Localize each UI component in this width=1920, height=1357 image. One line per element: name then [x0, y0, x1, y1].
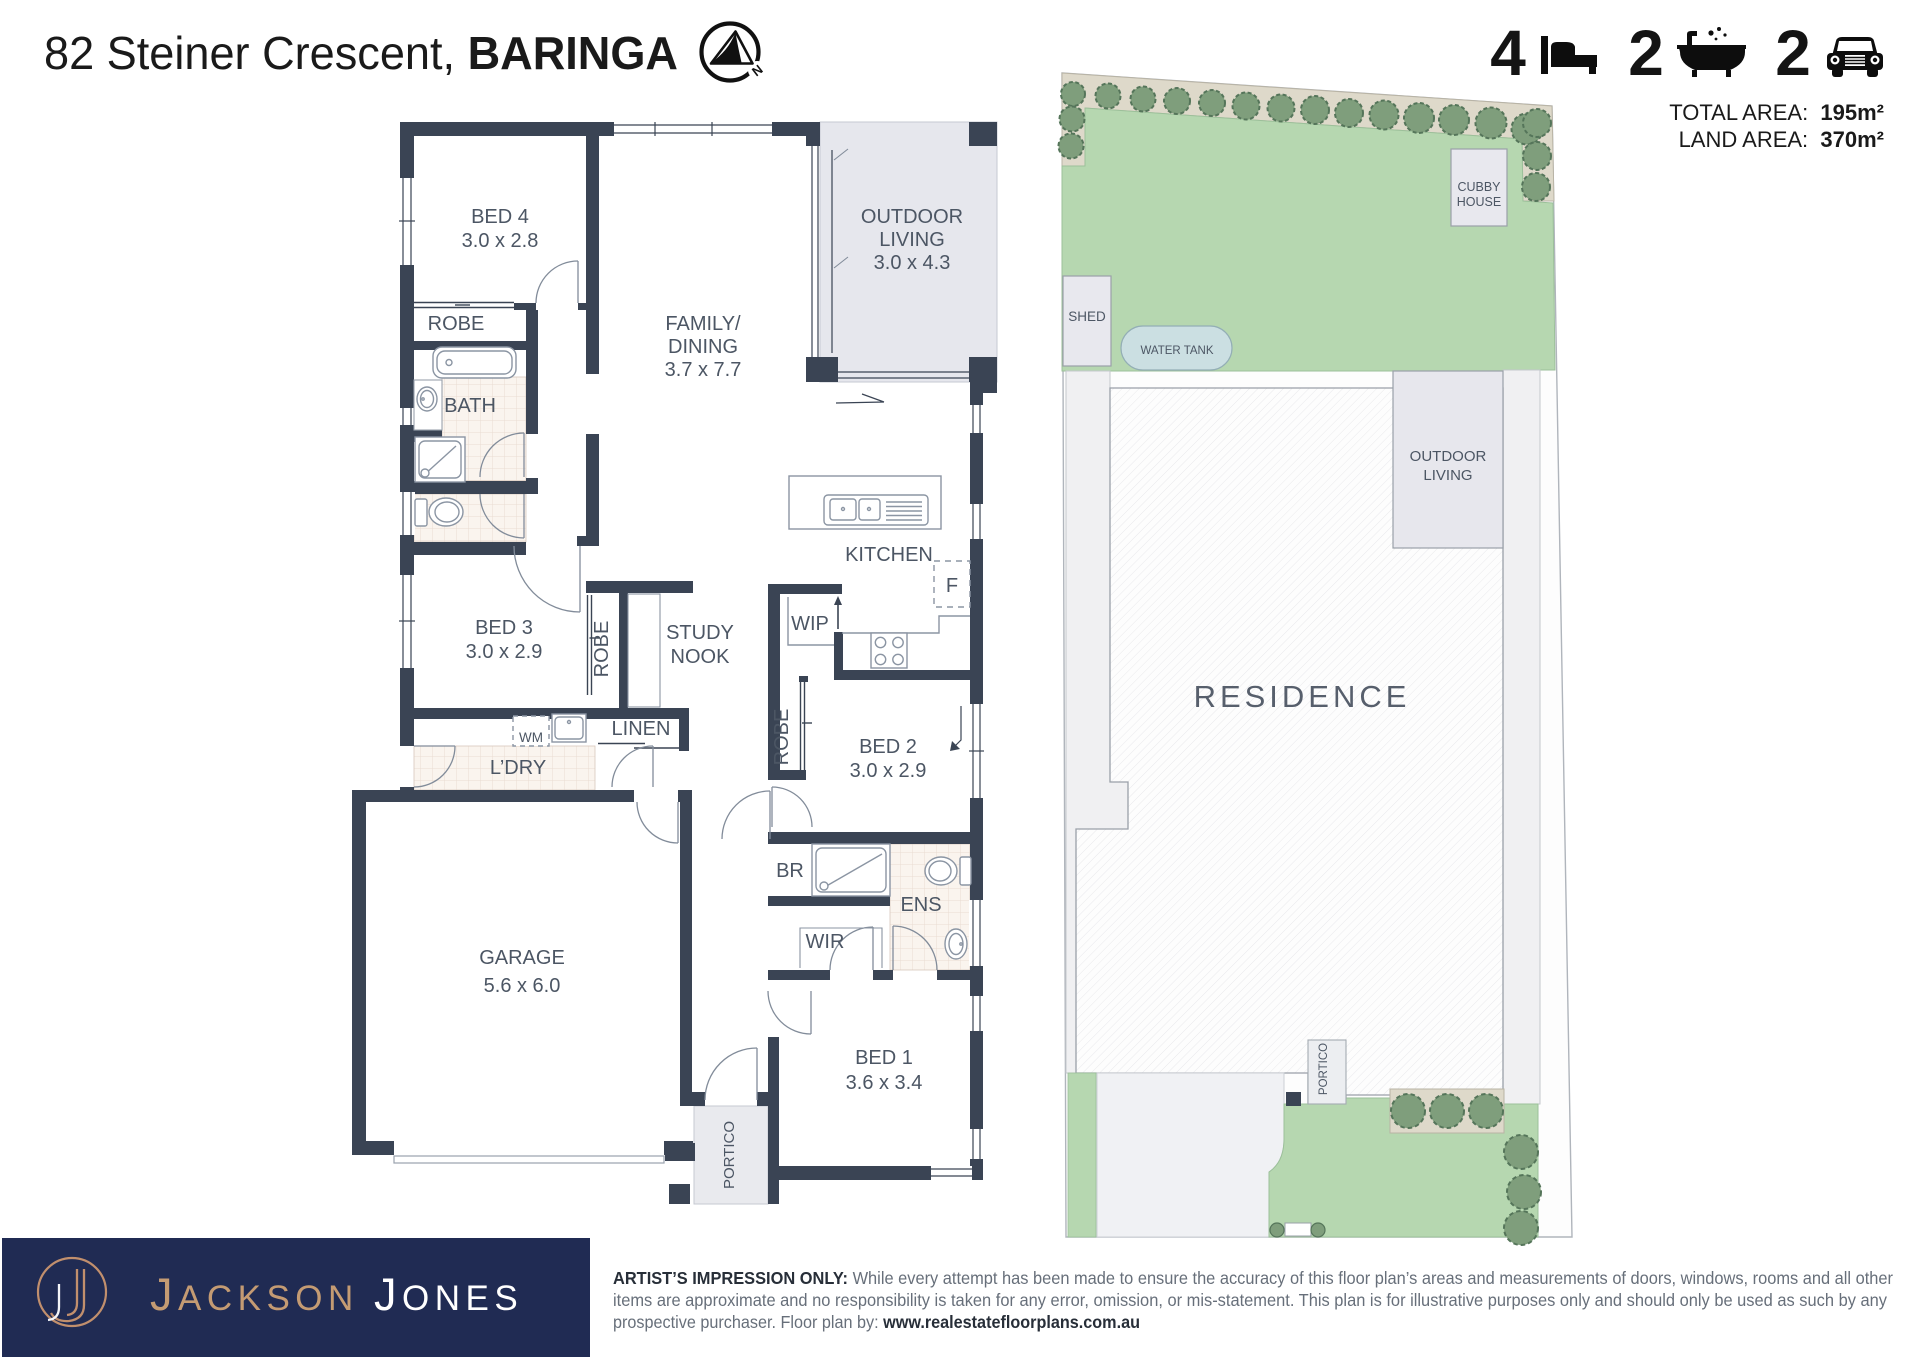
- svg-text:prospective purchaser. Floor p: prospective purchaser. Floor plan by: ww…: [613, 1312, 1140, 1332]
- svg-text:HOUSE: HOUSE: [1457, 195, 1501, 209]
- svg-text:WIR: WIR: [806, 931, 845, 953]
- svg-text:WM: WM: [519, 730, 543, 745]
- svg-text:DINING: DINING: [668, 336, 738, 358]
- svg-text:WATER TANK: WATER TANK: [1140, 345, 1213, 357]
- svg-text:NOOK: NOOK: [671, 646, 731, 668]
- svg-text:BATH: BATH: [444, 395, 496, 417]
- svg-text:3.0 x 2.9: 3.0 x 2.9: [850, 760, 927, 782]
- svg-text:TOTAL AREA: 195m²: TOTAL AREA: 195m²: [1669, 100, 1884, 125]
- svg-text:82 Steiner Crescent, BARINGA: 82 Steiner Crescent, BARINGA: [44, 27, 678, 79]
- svg-text:3.7 x 7.7: 3.7 x 7.7: [665, 359, 742, 381]
- svg-text:ENS: ENS: [900, 894, 941, 916]
- svg-text:2: 2: [1775, 17, 1811, 89]
- svg-text:OUTDOOR: OUTDOOR: [1410, 448, 1487, 465]
- svg-text:LIVING: LIVING: [1423, 467, 1472, 484]
- svg-text:WIP: WIP: [791, 613, 829, 635]
- svg-text:SHED: SHED: [1068, 309, 1106, 324]
- svg-text:GARAGE: GARAGE: [479, 947, 565, 969]
- svg-text:FAMILY/: FAMILY/: [665, 313, 741, 335]
- svg-text:items are approximate and no r: items are approximate and no responsibil…: [613, 1290, 1887, 1310]
- svg-text:3.6 x 3.4: 3.6 x 3.4: [846, 1072, 923, 1094]
- svg-text:3.0 x 2.9: 3.0 x 2.9: [466, 641, 543, 663]
- svg-text:ROBE: ROBE: [591, 621, 613, 678]
- svg-text:4: 4: [1490, 17, 1526, 89]
- svg-text:KITCHEN: KITCHEN: [845, 544, 933, 566]
- svg-text:ARTIST’S IMPRESSION ONLY: Whil: ARTIST’S IMPRESSION ONLY: While every at…: [613, 1268, 1893, 1288]
- svg-text:RESIDENCE: RESIDENCE: [1194, 679, 1411, 714]
- svg-text:BED 2: BED 2: [859, 736, 917, 758]
- svg-text:PORTICO: PORTICO: [1318, 1043, 1330, 1095]
- svg-text:BED 4: BED 4: [471, 206, 529, 228]
- svg-text:PORTICO: PORTICO: [721, 1121, 738, 1189]
- svg-text:ROBE: ROBE: [771, 709, 793, 766]
- svg-text:5.6 x 6.0: 5.6 x 6.0: [484, 975, 561, 997]
- svg-text:CUBBY: CUBBY: [1457, 180, 1501, 194]
- svg-text:STUDY: STUDY: [666, 622, 734, 644]
- svg-text:3.0 x 4.3: 3.0 x 4.3: [874, 252, 951, 274]
- svg-text:2: 2: [1628, 17, 1664, 89]
- svg-text:F: F: [946, 575, 958, 597]
- svg-text:BED 3: BED 3: [475, 617, 533, 639]
- svg-text:LINEN: LINEN: [612, 718, 671, 740]
- svg-text:3.0 x 2.8: 3.0 x 2.8: [462, 230, 539, 252]
- svg-text:BED 1: BED 1: [855, 1047, 913, 1069]
- svg-text:BR: BR: [776, 860, 804, 882]
- svg-text:OUTDOOR: OUTDOOR: [861, 206, 963, 228]
- svg-text:LAND AREA: 370m²: LAND AREA: 370m²: [1679, 127, 1884, 152]
- svg-text:LIVING: LIVING: [879, 229, 945, 251]
- svg-text:ROBE: ROBE: [428, 313, 485, 335]
- svg-text:L’DRY: L’DRY: [490, 757, 546, 779]
